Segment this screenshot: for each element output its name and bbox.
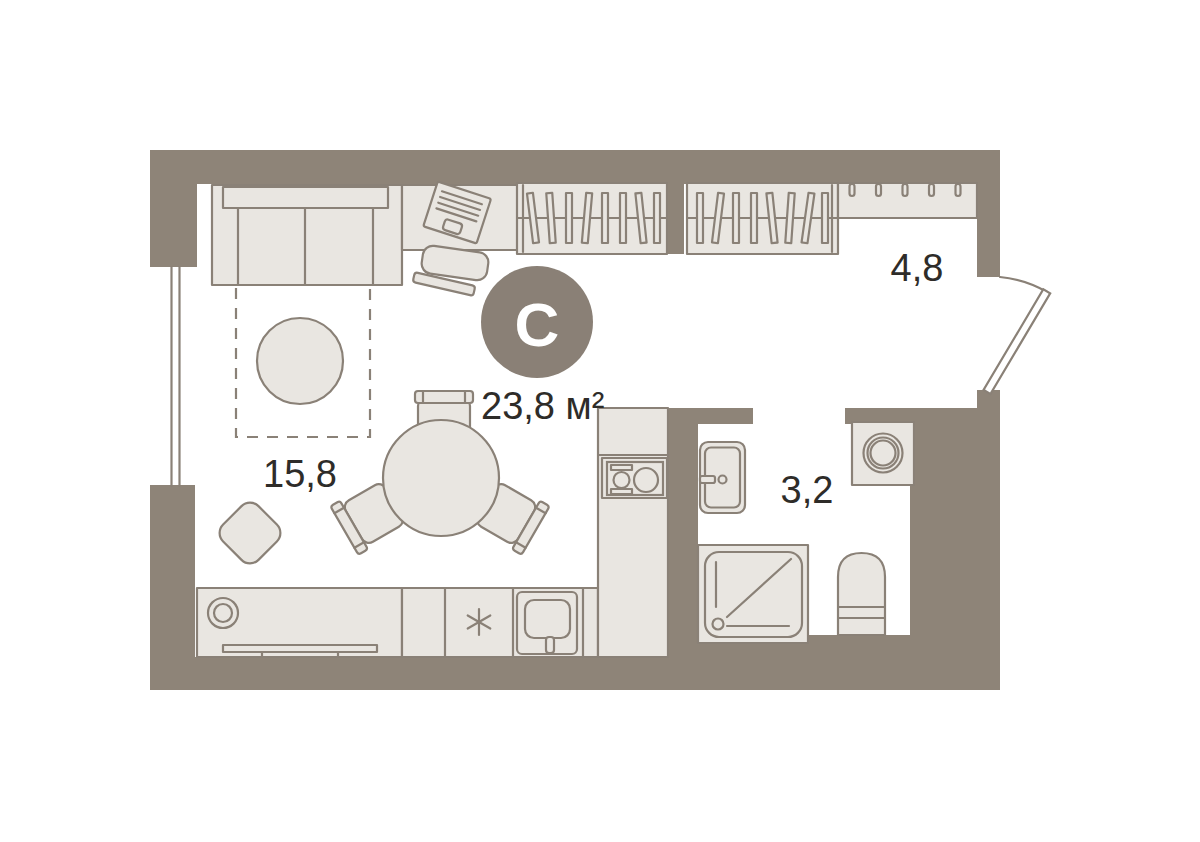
tv-stand (262, 652, 338, 657)
door-leaf (984, 289, 1051, 394)
toilet-bowl (838, 553, 885, 635)
hanger-slat (566, 193, 572, 243)
entrance-door (984, 277, 1051, 394)
wall-bath-right (910, 422, 1000, 657)
sleeping-zone (236, 288, 370, 437)
wardrobe-left (517, 183, 667, 254)
kitchen-row (402, 588, 598, 657)
badge-letter: С (515, 290, 560, 359)
wall-bath-left (668, 408, 698, 657)
coat-hook (876, 184, 881, 196)
hanger-slat (822, 193, 828, 243)
hanger-slat (751, 193, 757, 243)
sink-faucet (700, 476, 715, 483)
washing-machine (852, 422, 914, 485)
living-room-area-label: 15,8 (263, 453, 337, 495)
hallway-area-label: 4,8 (891, 247, 944, 289)
hanger-slat (733, 193, 739, 243)
desk-chair (413, 245, 490, 296)
apartment-type-badge: С (481, 266, 593, 378)
bathroom-sink (700, 442, 745, 513)
toilet (838, 553, 885, 635)
burner-bar (611, 489, 632, 494)
round-rug (257, 318, 343, 404)
hanger-slat (697, 193, 703, 243)
corner-sofa (212, 185, 402, 285)
coat-hook (929, 184, 934, 196)
wall-wardrobe-stub (668, 184, 684, 254)
wall-bottom (150, 657, 1000, 690)
wardrobe-right (687, 183, 838, 254)
total-area-label: 23,8 м² (481, 385, 604, 427)
cooktop (602, 458, 667, 498)
kitchen-column (598, 408, 668, 657)
kitchen-sink (517, 592, 577, 654)
door-swing-arc (1000, 277, 1047, 292)
kitchen-tall-counter (598, 408, 668, 657)
bathroom-fixtures (698, 422, 914, 643)
sofa-backrest (223, 187, 388, 208)
coat-hook (956, 184, 961, 196)
floor-plan: С 23,8 м² 15,8 4,8 3,2 (0, 0, 1200, 842)
wall-bath-bottom-toilet (808, 635, 1000, 657)
wall-left-upper (150, 150, 197, 267)
coat-hook (850, 184, 855, 196)
shower (698, 545, 808, 643)
wall-top (150, 150, 1000, 184)
tv-console (197, 588, 402, 657)
dining-table (383, 420, 499, 536)
bathroom-area-label: 3,2 (781, 469, 834, 511)
hanger-slat (620, 193, 626, 243)
sink-faucet (546, 637, 554, 653)
washer-body (852, 422, 914, 485)
wall-right-upper (977, 150, 1000, 277)
hanger-slat (602, 193, 608, 243)
coat-rack (838, 183, 977, 218)
decor-circle (208, 598, 238, 628)
floor-plan-canvas: С 23,8 м² 15,8 4,8 3,2 (0, 0, 1200, 842)
window (172, 267, 180, 486)
shower-drain (713, 619, 724, 630)
coat-hook (903, 184, 908, 196)
desk-area (402, 182, 518, 296)
hanger-slat (654, 193, 660, 243)
wall-bath-bottom-shower (698, 643, 808, 657)
burner-bar (611, 465, 632, 470)
ottoman (215, 498, 286, 569)
